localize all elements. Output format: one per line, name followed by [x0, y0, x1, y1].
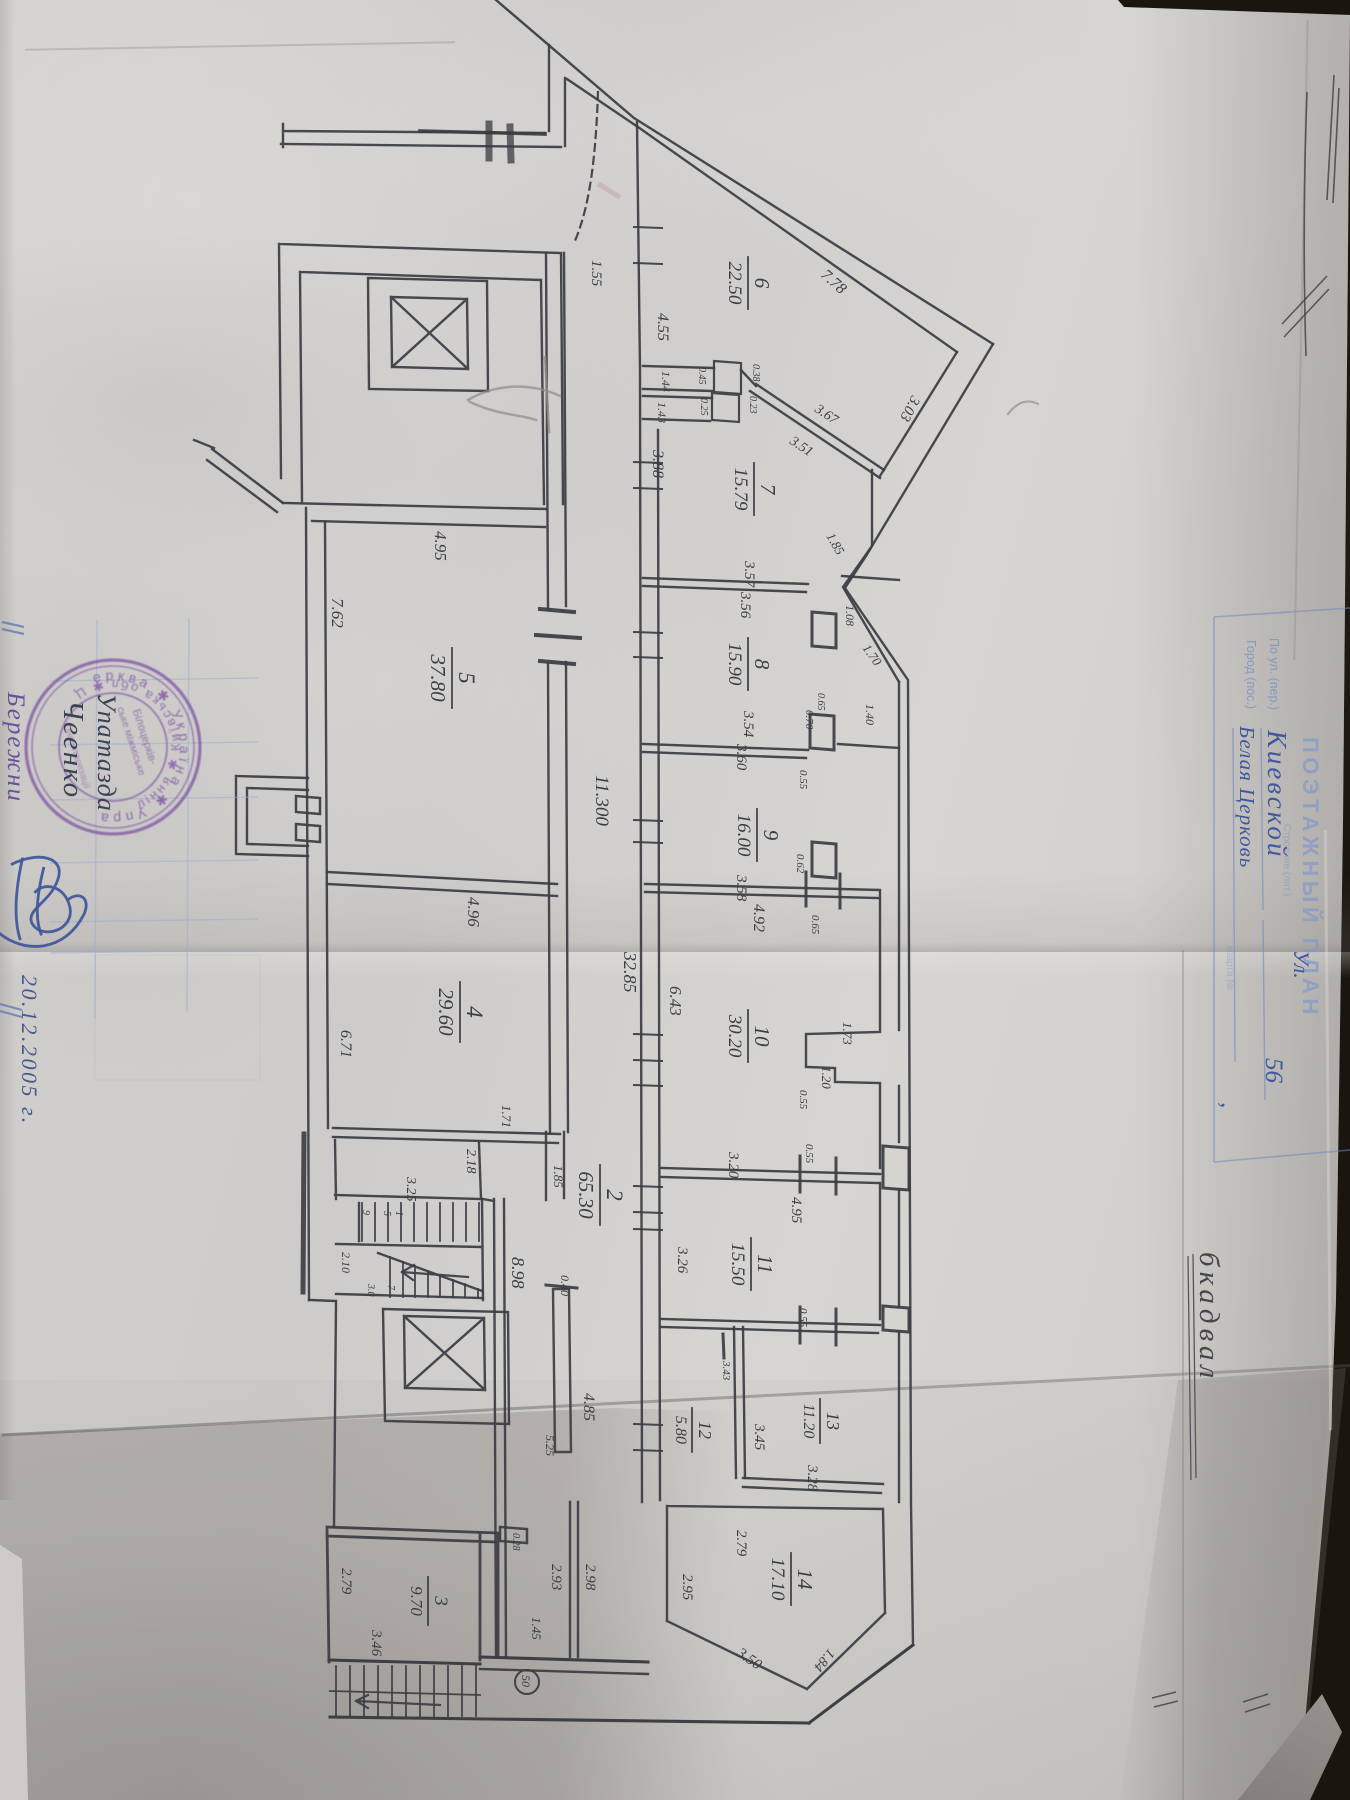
svg-text:бкадвал: бкадвал: [1193, 1252, 1225, 1383]
svg-text:кварта №: кварта №: [1224, 946, 1235, 990]
svg-text:Чеенко: Чеенко: [57, 700, 89, 799]
svg-text:20.12.2005 г.: 20.12.2005 г.: [17, 975, 42, 1126]
svg-text:56: 56: [1260, 1058, 1287, 1084]
svg-text:Киевской: Киевской: [1262, 729, 1292, 859]
svg-text:Белая Церковь: Белая Церковь: [1235, 725, 1259, 868]
svg-text:По ул. (пер.): По ул. (пер.): [1267, 638, 1281, 710]
svg-text:,: ,: [1216, 1102, 1243, 1108]
svg-text:Упатазда: Упатазда: [92, 693, 121, 812]
svg-text:Бережни: Бережни: [2, 691, 29, 803]
svg-text:Ул.: Ул.: [1289, 950, 1314, 979]
svg-text:Город (пос.): Город (пос.): [1244, 640, 1258, 709]
